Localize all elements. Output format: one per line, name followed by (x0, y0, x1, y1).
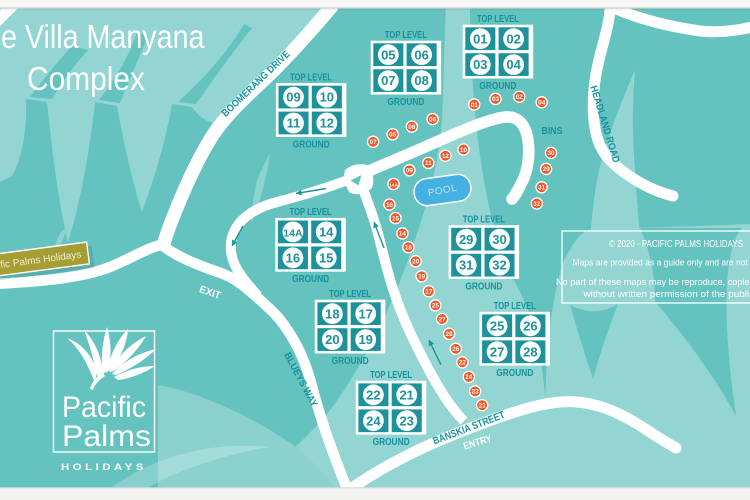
svg-text:24: 24 (465, 374, 473, 381)
svg-text:14A: 14A (389, 182, 398, 188)
svg-text:12: 12 (320, 116, 334, 131)
svg-text:16: 16 (286, 250, 300, 265)
svg-text:10: 10 (320, 90, 334, 105)
svg-text:06: 06 (429, 116, 437, 123)
svg-text:14: 14 (319, 225, 334, 240)
svg-text:BINS: BINS (542, 126, 563, 137)
svg-text:25: 25 (490, 318, 504, 333)
svg-text:19: 19 (358, 332, 372, 347)
svg-text:18: 18 (405, 245, 413, 252)
svg-text:15: 15 (392, 215, 400, 222)
svg-text:TOP LEVEL: TOP LEVEL (494, 301, 536, 312)
svg-text:32: 32 (492, 258, 506, 273)
svg-text:31: 31 (538, 185, 546, 192)
svg-text:22: 22 (366, 387, 380, 402)
svg-text:TOP LEVEL: TOP LEVEL (290, 207, 332, 218)
svg-text:TOP LEVEL: TOP LEVEL (329, 289, 371, 300)
svg-text:21: 21 (479, 403, 487, 410)
svg-text:30: 30 (492, 232, 506, 247)
svg-text:TOP LEVEL: TOP LEVEL (463, 214, 505, 225)
svg-text:10: 10 (460, 147, 468, 154)
svg-text:17: 17 (358, 306, 372, 321)
svg-text:No part of these maps may be r: No part of these maps may be reproduce, … (556, 276, 750, 287)
svg-text:23: 23 (399, 413, 413, 428)
svg-text:28: 28 (446, 331, 454, 338)
svg-text:08: 08 (414, 73, 428, 88)
svg-text:26: 26 (523, 318, 537, 333)
svg-text:TOP LEVEL: TOP LEVEL (477, 14, 519, 25)
svg-text:06: 06 (414, 47, 428, 62)
svg-text:09: 09 (406, 168, 414, 175)
svg-text:11: 11 (425, 160, 432, 167)
svg-text:© 2020 - PACIFIC PALMS HOLIDAY: © 2020 - PACIFIC PALMS HOLIDAYS (609, 239, 743, 250)
svg-text:GROUND: GROUND (373, 437, 410, 448)
svg-text:03: 03 (473, 57, 487, 72)
svg-text:The Villa Manyana: The Villa Manyana (0, 18, 205, 55)
svg-text:Palms: Palms (62, 420, 151, 453)
svg-text:24: 24 (366, 413, 381, 428)
svg-text:19: 19 (418, 274, 426, 281)
svg-text:27: 27 (438, 316, 446, 323)
svg-text:11: 11 (287, 116, 301, 131)
svg-text:GROUND: GROUND (496, 368, 533, 379)
svg-text:29: 29 (543, 166, 551, 173)
svg-text:26: 26 (452, 346, 460, 353)
svg-text:TOP LEVEL: TOP LEVEL (385, 30, 427, 41)
svg-text:02: 02 (506, 31, 520, 46)
svg-text:14A: 14A (283, 228, 303, 240)
svg-text:GROUND: GROUND (387, 97, 424, 108)
svg-text:TOP LEVEL: TOP LEVEL (370, 370, 412, 381)
svg-text:17: 17 (425, 289, 433, 296)
svg-text:12: 12 (442, 153, 450, 160)
svg-text:31: 31 (459, 258, 473, 273)
svg-text:09: 09 (286, 90, 300, 105)
svg-text:14: 14 (399, 231, 407, 238)
svg-text:GROUND: GROUND (479, 81, 516, 92)
svg-text:32: 32 (533, 201, 541, 208)
svg-text:28: 28 (523, 344, 537, 359)
svg-text:GROUND: GROUND (293, 139, 330, 150)
svg-text:16: 16 (386, 202, 394, 209)
svg-text:Complex: Complex (27, 60, 145, 97)
svg-text:18: 18 (325, 306, 339, 321)
svg-text:22: 22 (459, 360, 467, 367)
svg-text:25: 25 (432, 303, 440, 310)
svg-text:02: 02 (516, 94, 524, 101)
svg-text:without written permission of: without written permission of the publis… (582, 288, 750, 299)
svg-text:27: 27 (490, 344, 504, 359)
svg-text:07: 07 (381, 73, 395, 88)
svg-text:03: 03 (492, 96, 500, 103)
svg-text:29: 29 (459, 232, 473, 247)
svg-text:GROUND: GROUND (292, 274, 329, 285)
svg-text:15: 15 (319, 250, 333, 265)
svg-text:01: 01 (471, 102, 479, 109)
svg-text:04: 04 (506, 57, 521, 72)
svg-text:GROUND: GROUND (332, 356, 369, 367)
svg-text:23: 23 (472, 389, 480, 396)
svg-text:Maps are provided as a guide o: Maps are provided as a guide only and ar… (573, 257, 750, 268)
svg-text:30: 30 (547, 150, 555, 157)
svg-text:HOLIDAYS: HOLIDAYS (61, 462, 147, 473)
svg-text:07: 07 (370, 139, 378, 146)
svg-text:20: 20 (412, 259, 420, 266)
svg-text:04: 04 (538, 100, 546, 107)
svg-text:08: 08 (408, 124, 416, 131)
svg-text:05: 05 (389, 132, 397, 139)
svg-text:20: 20 (325, 332, 339, 347)
svg-text:GROUND: GROUND (465, 281, 502, 292)
svg-text:TOP LEVEL: TOP LEVEL (290, 72, 332, 83)
svg-text:01: 01 (473, 31, 487, 46)
svg-text:21: 21 (399, 387, 413, 402)
svg-text:05: 05 (381, 47, 395, 62)
